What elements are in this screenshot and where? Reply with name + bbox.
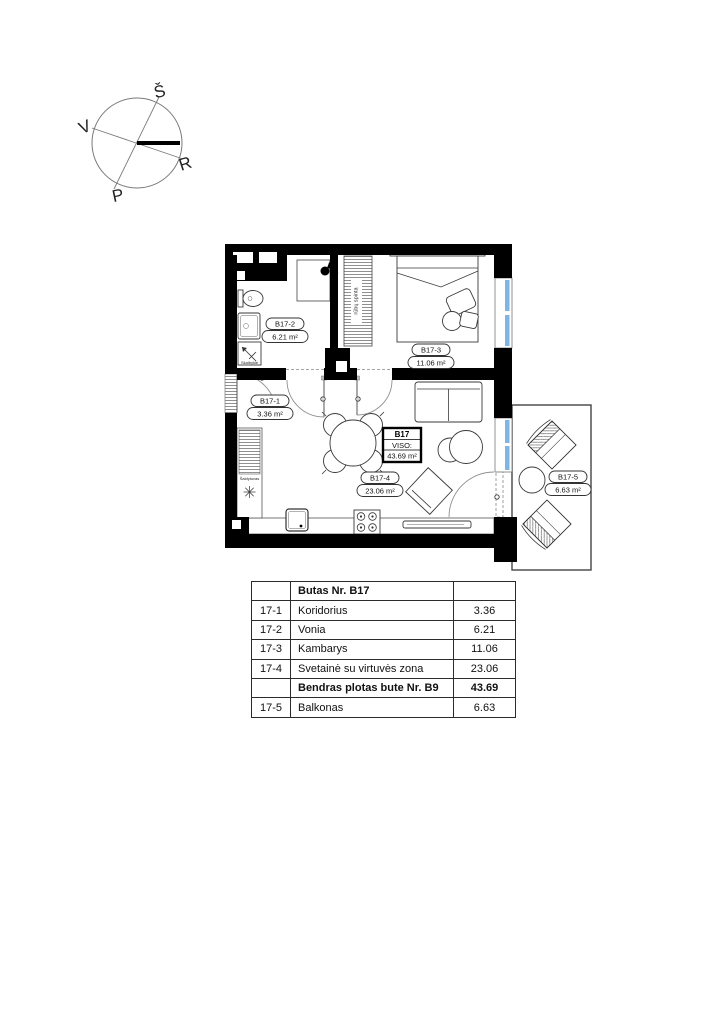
- header-no: [252, 582, 291, 601]
- compass-rose: Š V R P: [76, 81, 194, 206]
- bedroom-side-table: [459, 311, 479, 329]
- svg-text:6.21 m²: 6.21 m²: [272, 333, 298, 342]
- sink: [238, 313, 260, 339]
- table-total-row: Bendras plotas bute Nr. B9 43.69: [252, 678, 516, 697]
- row-no: 17-3: [252, 640, 291, 659]
- row-value: 11.06: [454, 640, 516, 659]
- bedroom-furniture: [390, 248, 485, 342]
- row-name: Kambarys: [291, 640, 454, 659]
- bedroom-stool: [443, 312, 462, 331]
- row-value: 6.63: [454, 698, 516, 717]
- balcony-table: [519, 467, 545, 493]
- row-no: 17-2: [252, 620, 291, 639]
- table-row: 17-2 Vonia 6.21: [252, 620, 516, 639]
- table-row: 17-5 Balkonas 6.63: [252, 698, 516, 717]
- living-window: [495, 418, 512, 472]
- wardrobe: rūbų spinta: [344, 256, 372, 346]
- row-name: Koridorius: [291, 601, 454, 620]
- row-no: 17-1: [252, 601, 291, 620]
- compass-label-west: V: [76, 116, 94, 138]
- row-name: Balkonas: [291, 698, 454, 717]
- table-row: 17-3 Kambarys 11.06: [252, 640, 516, 659]
- svg-text:B17-5: B17-5: [558, 473, 578, 482]
- svg-text:6.63 m²: 6.63 m²: [555, 486, 581, 495]
- compass-label-north: Š: [152, 81, 168, 102]
- room-label-b17-1: B17-1 3.36 m²: [247, 395, 293, 420]
- room-label-b17-2: B17-2 6.21 m²: [262, 318, 308, 343]
- row-value: 3.36: [454, 601, 516, 620]
- compass-label-east: R: [177, 153, 195, 175]
- floorplan-page: Š V R P: [0, 0, 724, 1024]
- row-no: 17-4: [252, 659, 291, 678]
- dining-table: [330, 420, 376, 466]
- row-value: 6.21: [454, 620, 516, 639]
- svg-text:23.06 m²: 23.06 m²: [365, 487, 395, 496]
- row-name: Bendras plotas bute Nr. B9: [291, 678, 454, 697]
- svg-text:B17-4: B17-4: [370, 474, 390, 483]
- snowflake-icon: [244, 486, 256, 498]
- room-label-b17-3: B17-3 11.06 m²: [408, 344, 454, 369]
- room-label-b17-5: B17-5 6.63 m²: [545, 471, 591, 496]
- bedroom-window: [495, 278, 512, 348]
- header-value: [454, 582, 516, 601]
- svg-text:3.36 m²: 3.36 m²: [257, 410, 283, 419]
- area-table: Butas Nr. B17 17-1 Koridorius 3.36 17-2 …: [251, 581, 515, 718]
- toilet: [238, 290, 263, 307]
- floorplan-drawing: Š V R P: [0, 0, 724, 1024]
- stove: [354, 510, 380, 534]
- coffee-table-large: [450, 431, 483, 464]
- svg-text:B17-2: B17-2: [275, 320, 295, 329]
- armchair: [406, 468, 453, 515]
- row-no: 17-5: [252, 698, 291, 717]
- svg-text:B17-3: B17-3: [421, 346, 441, 355]
- washer-label: Skalbyklė: [241, 360, 259, 365]
- kitchen-sink: [286, 509, 308, 531]
- unit-id: B17: [395, 430, 410, 439]
- sofa: [415, 382, 482, 422]
- table-row: 17-1 Koridorius 3.36: [252, 601, 516, 620]
- row-no: [252, 678, 291, 697]
- table-header-row: Butas Nr. B17: [252, 582, 516, 601]
- bedroom-door: [355, 370, 393, 416]
- row-name: Vonia: [291, 620, 454, 639]
- fridge-label: Šaldytuvas: [240, 476, 260, 481]
- table-row: 17-4 Svetainė su virtuvės zona 23.06: [252, 659, 516, 678]
- row-value: 23.06: [454, 659, 516, 678]
- unit-total-box: B17 VISO: 43.69 m²: [383, 428, 421, 462]
- row-name: Svetainė su virtuvės zona: [291, 659, 454, 678]
- svg-text:B17-1: B17-1: [260, 397, 280, 406]
- balcony-door: [449, 472, 503, 517]
- unit-viso-label: VISO:: [392, 441, 412, 450]
- dining-set: [322, 412, 384, 474]
- fridge-cabinet: Šaldytuvas: [237, 428, 262, 518]
- unit-total-area: 43.69 m²: [387, 452, 417, 461]
- row-value: 43.69: [454, 678, 516, 697]
- header-title: Butas Nr. B17: [291, 582, 454, 601]
- room-label-b17-4: B17-4 23.06 m²: [357, 472, 403, 497]
- washing-machine: Skalbyklė: [238, 342, 261, 365]
- compass-label-south: P: [110, 185, 125, 206]
- svg-text:11.06 m²: 11.06 m²: [416, 359, 446, 368]
- tv-bench: [403, 521, 471, 528]
- wardrobe-label: rūbų spinta: [354, 286, 360, 314]
